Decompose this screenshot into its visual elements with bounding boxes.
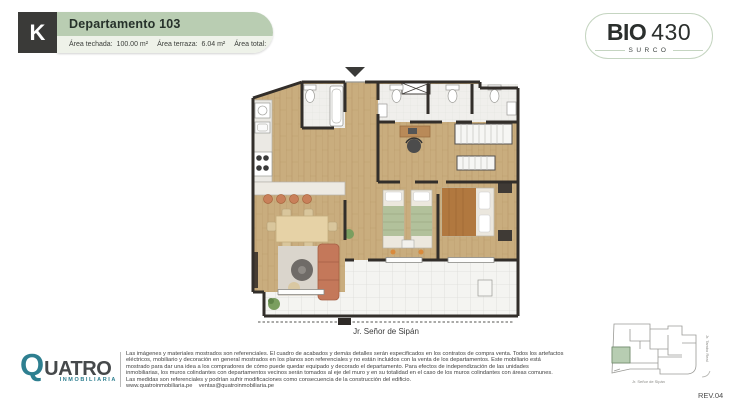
key-plan: Jr. Tambo Real Jr. Señor de Sipán [600,321,720,392]
footer-divider [120,352,121,387]
boundary-marker [338,318,351,325]
legal-contacts: www.quatroinmobiliaria.pe ventas@quatroi… [126,383,614,389]
developer-logo-q: Q [20,349,44,380]
area-techada: Área techada: 100.00 m² [69,41,148,48]
district-label: SURCO [629,47,670,54]
street-label: Jr. Señor de Sipán [250,327,522,336]
key-plan-svg: Jr. Tambo Real Jr. Señor de Sipán [600,321,720,387]
unit-letter-badge: K [18,12,57,53]
project-name-number: 430 [651,21,691,44]
developer-name: QUATRO [20,349,117,380]
rule-left [595,50,625,51]
project-name-bold: BIO [607,21,646,44]
legal-line: eléctricos, mobiliario y decoración en g… [126,357,614,363]
keyplan-street-bottom: Jr. Señor de Sipán [632,379,665,384]
revision-label: REV.04 [698,391,723,400]
unit-highlight [612,347,630,363]
developer-logo: QUATRO INMOBILIARIA [20,349,117,383]
legal-line: inmobiliarias, los muros colindantes con… [126,370,614,376]
keyplan-street-right: Jr. Tambo Real [705,335,710,362]
rule-right [673,50,703,51]
unit-title: Departamento 103 [57,12,273,36]
flyer-page: K Departamento 103 Área techada: 100.00 … [0,0,730,410]
area-terraza: Área terraza: 6.04 m² [157,41,225,48]
floor-plan-svg [250,64,522,330]
unit-header: Departamento 103 Área techada: 100.00 m²… [57,12,273,53]
entrance-arrow-icon [345,67,365,77]
project-logo: BIO 430 SURCO [585,13,713,59]
legal-disclaimer: Las imágenes y materiales mostrados son … [126,351,614,389]
project-name: BIO 430 [607,21,691,44]
floor-plan [250,64,522,330]
developer-logo-rest: UATRO [44,359,111,379]
street-curve [702,371,710,377]
district-row: SURCO [595,47,703,54]
area-total: Área total: 106.04 m² [234,41,273,48]
unit-areas: Área techada: 100.00 m² Área terraza: 6.… [57,36,273,53]
